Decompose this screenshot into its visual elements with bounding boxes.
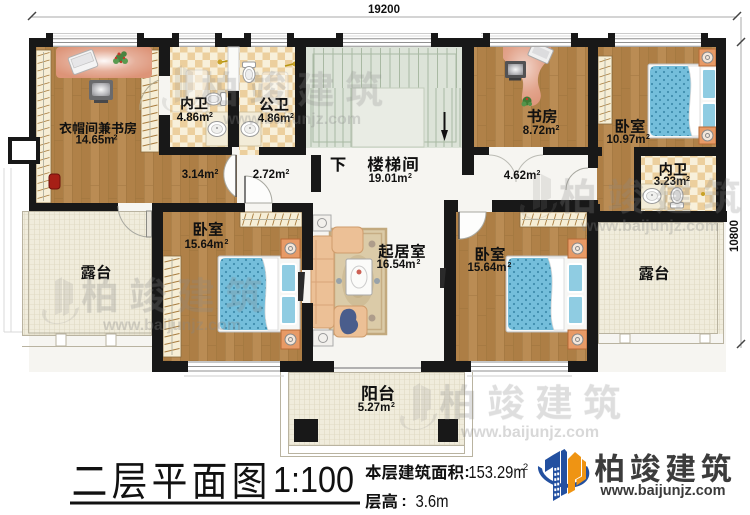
svg-text:3.14m: 3.14m <box>182 169 215 181</box>
svg-text:2: 2 <box>508 262 512 269</box>
svg-text:2: 2 <box>523 462 528 473</box>
svg-text:3.6m: 3.6m <box>415 492 448 511</box>
svg-text:2: 2 <box>114 135 118 142</box>
svg-text:5.27m: 5.27m <box>358 402 391 414</box>
svg-text:2: 2 <box>286 169 290 176</box>
svg-text:2.72m: 2.72m <box>253 169 286 181</box>
svg-text:2: 2 <box>408 173 412 180</box>
svg-text:www.baijunjz.com: www.baijunjz.com <box>599 483 725 499</box>
svg-text::: : <box>401 493 406 510</box>
svg-text:4.86m: 4.86m <box>177 112 210 124</box>
svg-text:2: 2 <box>417 259 421 266</box>
svg-text:153.29m: 153.29m <box>468 463 525 482</box>
svg-text:14.65m: 14.65m <box>75 135 114 147</box>
svg-text:16.54m: 16.54m <box>376 259 415 271</box>
svg-text:15.64m: 15.64m <box>467 262 506 274</box>
svg-text:8.72m: 8.72m <box>523 125 556 137</box>
svg-text:2: 2 <box>215 169 219 176</box>
svg-text:10.97m: 10.97m <box>606 134 645 146</box>
svg-text:2: 2 <box>225 239 229 246</box>
svg-text:1:100: 1:100 <box>273 460 354 500</box>
svg-text:19.01m: 19.01m <box>368 173 407 185</box>
svg-text:www.baijunjz.com: www.baijunjz.com <box>102 317 241 334</box>
svg-text:10800: 10800 <box>729 220 741 252</box>
svg-text:2: 2 <box>556 125 560 132</box>
svg-text:4.62m: 4.62m <box>504 170 537 182</box>
svg-text:19200: 19200 <box>368 4 400 16</box>
svg-text:www.baijunjz.com: www.baijunjz.com <box>580 218 719 235</box>
svg-text:15.64m: 15.64m <box>184 239 223 251</box>
svg-text:2: 2 <box>391 402 395 409</box>
svg-text:www.baijunjz.com: www.baijunjz.com <box>222 111 361 128</box>
svg-text:2: 2 <box>646 134 650 141</box>
svg-text:2: 2 <box>209 112 213 119</box>
svg-text:www.baijunjz.com: www.baijunjz.com <box>460 424 599 441</box>
